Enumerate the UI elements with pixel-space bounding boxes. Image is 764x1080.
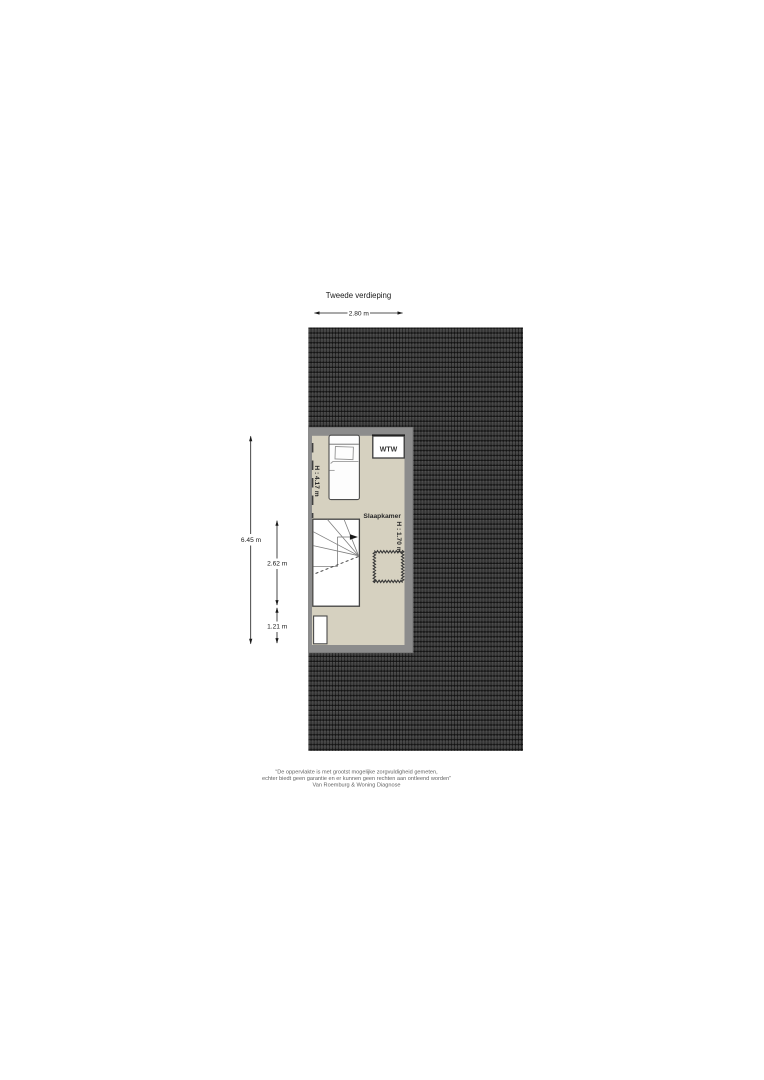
svg-text:H : 1.70 m: H : 1.70 m — [395, 521, 402, 552]
svg-text:H : 4.17 m: H : 4.17 m — [313, 465, 320, 496]
svg-text:Van Roemburg & Woning Diagnose: Van Roemburg & Woning Diagnose — [312, 783, 400, 789]
svg-text:Tweede verdieping: Tweede verdieping — [326, 291, 391, 300]
svg-text:2.80 m: 2.80 m — [349, 310, 370, 317]
svg-text:echter biedt geen garantie en: echter biedt geen garantie en er kunnen … — [262, 776, 451, 782]
svg-text:1.21 m: 1.21 m — [267, 624, 288, 631]
svg-text:Slaapkamer: Slaapkamer — [363, 513, 401, 520]
svg-text:WTW: WTW — [380, 447, 398, 454]
svg-text:“De oppervlakte is met grootst: “De oppervlakte is met grootst mogelijke… — [275, 770, 438, 776]
svg-text:2.62 m: 2.62 m — [267, 561, 288, 568]
svg-text:6.45 m: 6.45 m — [241, 537, 262, 544]
